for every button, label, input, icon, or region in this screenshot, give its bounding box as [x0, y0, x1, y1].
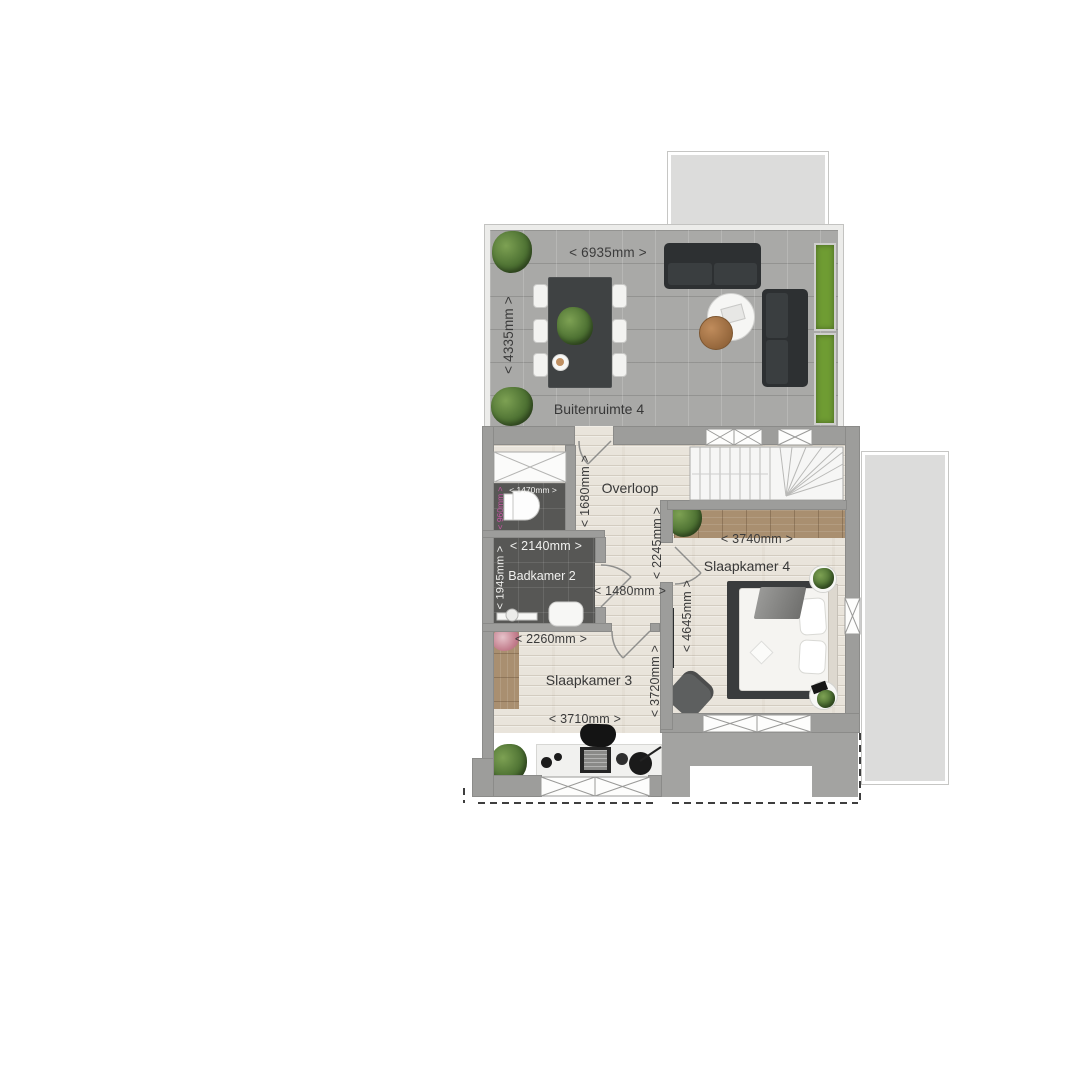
pillow: [798, 639, 827, 674]
planter: [814, 333, 836, 425]
wall: [595, 537, 606, 563]
bathroom-depth-dim: < 1945mm >: [494, 528, 507, 628]
throw-blanket: [754, 587, 807, 619]
headboard: [828, 584, 838, 694]
wall: [482, 426, 575, 445]
speaker: [554, 753, 562, 761]
dining-chair: [533, 284, 548, 308]
wall: [667, 500, 847, 510]
wall: [660, 713, 860, 733]
speaker: [541, 757, 552, 768]
landing-label: Overloop: [580, 480, 680, 496]
bedroom4-width-dim: < 3740mm >: [707, 532, 807, 546]
wall: [613, 426, 858, 445]
dining-chair: [612, 353, 627, 377]
bedroom4-label: Slaapkamer 4: [687, 558, 807, 574]
wall: [482, 426, 494, 797]
dining-chair: [533, 353, 548, 377]
bedroom3-label: Slaapkamer 3: [529, 672, 649, 688]
desk-chair: [580, 723, 617, 747]
wall: [472, 758, 494, 797]
bedroom4-depth-dim: < 4645mm >: [680, 566, 694, 666]
hallway-width-dim: < 1480mm >: [580, 584, 680, 598]
sofa-cushion: [668, 263, 712, 285]
wall: [565, 445, 576, 537]
roof-area-right: [862, 452, 948, 784]
terrace-width-dim: < 6935mm >: [548, 244, 668, 260]
mouse: [616, 753, 628, 765]
landing-width-dim: < 1680mm >: [577, 441, 593, 541]
side-table: [699, 316, 733, 350]
sofa-cushion: [714, 263, 757, 285]
terrace-label: Buitenruimte 4: [529, 401, 669, 417]
bathroom-label: Badkamer 2: [492, 569, 592, 583]
lower-roof-notch: [690, 766, 812, 797]
planter: [814, 243, 836, 331]
dining-chair: [612, 284, 627, 308]
bedroom3-depth-dim: < 3720mm >: [648, 631, 662, 731]
table-plant: [557, 307, 593, 345]
floor-plan: < 6935mm > < 4335mm > Buitenruimte 4 < 1…: [0, 0, 1080, 1080]
croissant: [556, 358, 564, 366]
bedroom3-bottom-width-dim: < 3710mm >: [535, 712, 635, 726]
bedroom3-top-width-dim: < 2260mm >: [501, 632, 601, 646]
wall: [648, 775, 662, 797]
wall: [845, 426, 860, 733]
desk-lamp: [629, 752, 652, 775]
dining-chair: [533, 319, 548, 343]
laptop-screen: [584, 750, 607, 770]
terrace-depth-dim: < 4335mm >: [500, 275, 516, 395]
sofa-cushion: [766, 340, 788, 384]
dining-chair: [612, 319, 627, 343]
toilet-width-dim: < 1470mm >: [503, 485, 563, 495]
bathroom-width-dim: < 2140mm >: [496, 539, 596, 553]
landing-depth-dim: < 2245mm >: [649, 493, 665, 593]
sofa-cushion: [766, 293, 788, 338]
